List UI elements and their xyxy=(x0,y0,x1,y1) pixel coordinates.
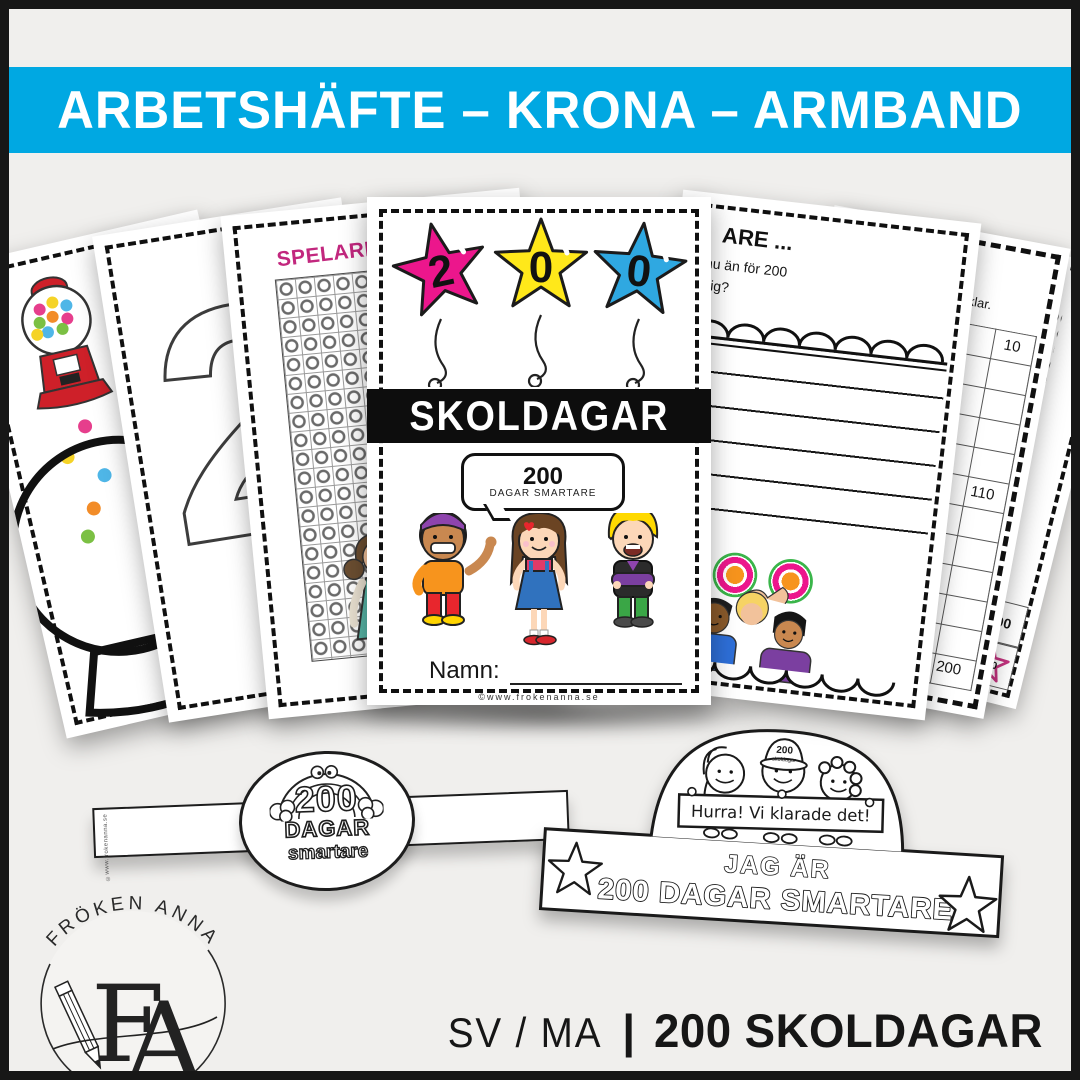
caption-subjects: SV / MA xyxy=(448,1009,603,1057)
logo-froken-anna: FRÖKEN ANNA F A xyxy=(23,885,241,1080)
caption-product: 200 SKOLDAGAR xyxy=(654,1003,1043,1058)
star-digit: 0 xyxy=(624,246,653,297)
star-balloon-yellow: 0 xyxy=(495,219,586,306)
banner-text: ARBETSHÄFTE – KRONA – ARMBAND xyxy=(57,80,1022,141)
product-image: ARBETSHÄFTE – KRONA – ARMBAND Rita xyxy=(0,0,1080,1080)
crown-cap-number: 200 xyxy=(776,745,794,757)
name-label: Namn: xyxy=(429,657,500,685)
star-balloon-blue: 0 xyxy=(590,218,690,314)
kid-girl xyxy=(511,513,567,645)
kid-blond xyxy=(609,513,657,627)
grid-number: 200 xyxy=(935,658,963,679)
star-balloons: 2 0 0 xyxy=(383,215,695,387)
writing-prompt-line1: nu än för 200 xyxy=(704,255,788,280)
kid-waving xyxy=(417,513,497,625)
caption-divider: | xyxy=(622,1004,635,1058)
grid-number: 10 xyxy=(1002,336,1022,356)
writing-title-fragment: ARE ... xyxy=(721,222,794,256)
cover-page: 2 0 0 SKOLDAGAR 200 DAGAR SMARTARE xyxy=(367,197,711,705)
cover-copyright: ©www.frokenanna.se xyxy=(367,692,711,702)
kids-illustration xyxy=(383,513,695,653)
badge-word2: smartare xyxy=(243,839,414,867)
cover-title: SKOLDAGAR xyxy=(409,392,669,440)
name-line xyxy=(510,663,682,685)
star-balloon-pink: 2 xyxy=(386,215,493,318)
top-banner: ARBETSHÄFTE – KRONA – ARMBAND xyxy=(9,67,1071,153)
name-field: Namn: xyxy=(429,657,682,685)
product-caption: SV / MA | 200 SKOLDAGAR xyxy=(441,1003,1049,1058)
star-digit: 0 xyxy=(529,243,553,292)
grid-number: 110 xyxy=(969,483,996,504)
logo-monogram-a: A xyxy=(124,980,205,1080)
bubble-caption: DAGAR SMARTARE xyxy=(490,488,597,499)
bubble-number: 200 xyxy=(523,466,563,488)
bracelet-copyright: ©www.frokenanna.se xyxy=(102,814,111,882)
crown-krona: 200 skoldagar Hurra! Vi klarade det! xyxy=(537,725,1019,963)
speech-bubble: 200 DAGAR SMARTARE xyxy=(461,453,625,511)
cover-title-banner: SKOLDAGAR xyxy=(367,389,711,443)
bracelet-badge: 200 DAGAR smartare xyxy=(237,748,418,894)
